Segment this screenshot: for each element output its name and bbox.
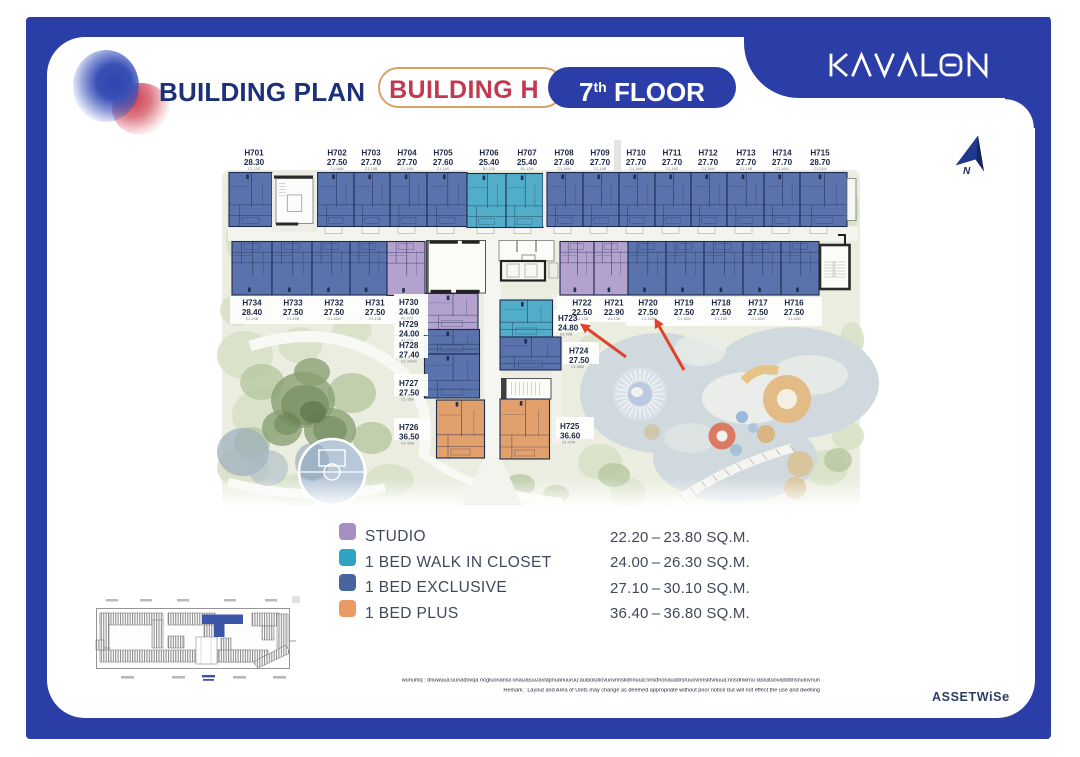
svg-text:B1-09B: B1-09B [560,333,573,337]
svg-text:H710: H710 [626,149,646,158]
svg-text:H734: H734 [242,299,262,308]
svg-text:25.40: 25.40 [517,158,538,167]
svg-text:27.50: 27.50 [748,308,769,317]
svg-text:C1-16S: C1-16S [437,167,450,171]
svg-text:C1-16M: C1-16M [401,398,414,402]
svg-text:H725: H725 [560,422,580,431]
svg-text:28.40: 28.40 [242,308,263,317]
svg-text:H732: H732 [324,299,344,308]
svg-text:N: N [963,166,971,177]
svg-text:25.40: 25.40 [479,158,500,167]
svg-text:H711: H711 [663,149,682,158]
svg-text:27.40: 27.40 [399,351,420,360]
svg-text:C1-16S: C1-16S [642,317,655,321]
svg-text:27.70: 27.70 [772,158,793,167]
svg-text:B1-13M: B1-13M [521,167,534,171]
svg-text:C1-24M: C1-24M [813,167,826,171]
svg-text:C1-16B: C1-16B [287,317,300,321]
svg-text:H722: H722 [572,299,592,308]
svg-text:H713: H713 [736,149,756,158]
svg-text:B1-13S: B1-13S [483,167,496,171]
svg-text:H715: H715 [810,149,830,158]
svg-text:H701: H701 [244,149,264,158]
svg-text:27.50: 27.50 [569,356,590,365]
svg-text:24.00: 24.00 [399,330,420,339]
svg-text:H731: H731 [365,299,385,308]
svg-text:C1-16M: C1-16M [557,167,570,171]
svg-text:C1-16M: C1-16M [629,167,642,171]
svg-text:27.50: 27.50 [283,308,304,317]
svg-text:H707: H707 [517,149,537,158]
svg-text:H723: H723 [558,314,578,323]
svg-text:C1-16M: C1-16M [701,167,714,171]
svg-text:H716: H716 [784,299,804,308]
svg-text:27.70: 27.70 [736,158,757,167]
svg-text:27.70: 27.70 [626,158,647,167]
svg-text:27.50: 27.50 [711,308,732,317]
svg-text:H721: H721 [604,299,624,308]
svg-text:H719: H719 [674,299,694,308]
svg-text:D1-42M: D1-42M [401,442,414,446]
svg-text:H709: H709 [590,149,610,158]
svg-text:D1-47M: D1-47M [562,441,575,445]
svg-text:H729: H729 [399,320,419,329]
svg-text:27.70: 27.70 [698,158,719,167]
svg-text:H726: H726 [399,423,419,432]
svg-text:C1-16M: C1-16M [327,317,340,321]
svg-text:C1-16S: C1-16S [666,167,679,171]
svg-text:36.50: 36.50 [399,433,420,442]
svg-text:C1-16B: C1-16B [365,167,378,171]
svg-text:C1-16B: C1-16B [740,167,753,171]
svg-text:A1-13B: A1-13B [576,317,589,321]
svg-text:27.70: 27.70 [361,158,382,167]
svg-text:A1-13B: A1-13B [608,317,621,321]
svg-text:C1-08M: C1-08M [330,167,343,171]
svg-text:H714: H714 [772,149,792,158]
svg-text:28.70: 28.70 [810,158,831,167]
svg-text:24.00: 24.00 [399,308,420,317]
svg-text:27.50: 27.50 [327,158,348,167]
svg-text:H704: H704 [397,149,417,158]
svg-text:C1-16S: C1-16S [715,317,728,321]
svg-text:H712: H712 [698,149,718,158]
svg-text:H718: H718 [711,299,731,308]
svg-text:C1-20B: C1-20B [246,317,259,321]
svg-text:27.60: 27.60 [554,158,575,167]
svg-text:28.30: 28.30 [244,158,265,167]
svg-text:C1-16AM: C1-16AM [401,360,417,364]
svg-text:27.50: 27.50 [399,389,420,398]
svg-text:H702: H702 [327,149,347,158]
svg-text:C1-16M: C1-16M [787,317,800,321]
svg-text:H703: H703 [361,149,381,158]
svg-text:27.50: 27.50 [365,308,386,317]
svg-text:H720: H720 [638,299,658,308]
svg-text:27.70: 27.70 [662,158,683,167]
svg-text:27.70: 27.70 [397,158,418,167]
svg-text:27.60: 27.60 [433,158,454,167]
svg-text:C1-16M: C1-16M [751,317,764,321]
svg-text:27.50: 27.50 [638,308,659,317]
svg-text:C1-16B: C1-16B [594,167,607,171]
svg-text:H730: H730 [399,298,419,307]
svg-text:H717: H717 [748,299,768,308]
svg-text:24.80: 24.80 [558,324,579,333]
svg-text:C1-22S: C1-22S [248,167,261,171]
svg-text:27.50: 27.50 [784,308,805,317]
svg-text:27.50: 27.50 [324,308,345,317]
svg-text:27.70: 27.70 [590,158,611,167]
svg-text:C1-16M: C1-16M [400,167,413,171]
svg-text:H728: H728 [399,341,419,350]
svg-text:22.90: 22.90 [604,308,625,317]
svg-text:H727: H727 [399,379,419,388]
svg-text:C1-16M: C1-16M [677,317,690,321]
svg-text:C1-16M: C1-16M [775,167,788,171]
svg-text:H733: H733 [283,299,303,308]
svg-text:H724: H724 [569,347,589,356]
svg-text:H708: H708 [554,149,574,158]
svg-text:H705: H705 [433,149,453,158]
svg-text:C1-16B: C1-16B [369,317,382,321]
svg-text:27.50: 27.50 [674,308,695,317]
svg-text:36.60: 36.60 [560,432,581,441]
svg-text:H706: H706 [479,149,499,158]
svg-text:C1-08M: C1-08M [571,365,584,369]
